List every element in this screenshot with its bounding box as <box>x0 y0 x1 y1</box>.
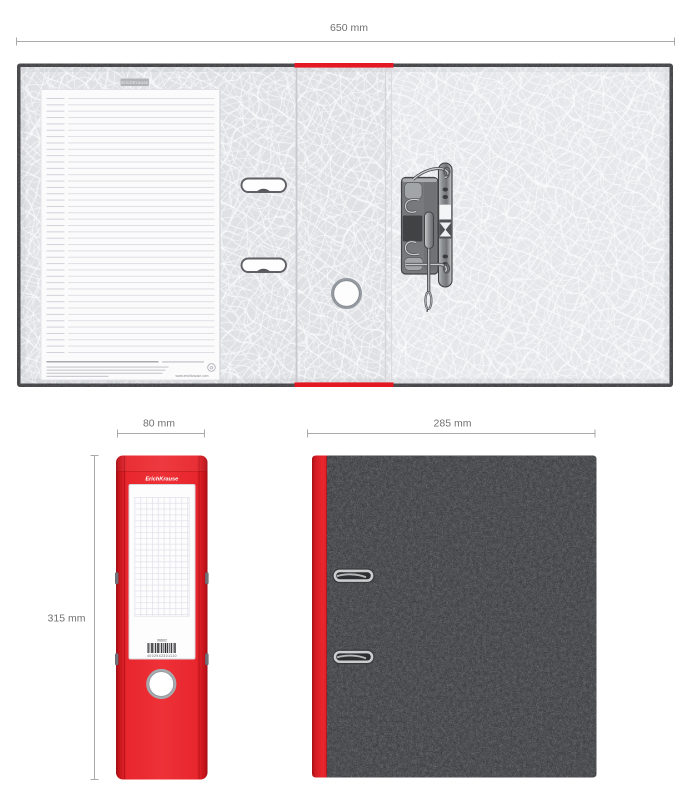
svg-text:♻: ♻ <box>209 366 214 372</box>
svg-text:06602: 06602 <box>157 639 167 643</box>
svg-text:80 mm: 80 mm <box>143 418 175 430</box>
svg-text:4002942301110: 4002942301110 <box>147 654 177 658</box>
svg-text:ErichKrause: ErichKrause <box>121 80 149 85</box>
svg-text:ErichKrause: ErichKrause <box>145 476 178 482</box>
svg-text:www.erichkrause.com: www.erichkrause.com <box>176 374 209 378</box>
svg-text:315 mm: 315 mm <box>48 613 86 625</box>
svg-text:285 mm: 285 mm <box>434 418 472 430</box>
svg-text:650 mm: 650 mm <box>330 22 368 34</box>
